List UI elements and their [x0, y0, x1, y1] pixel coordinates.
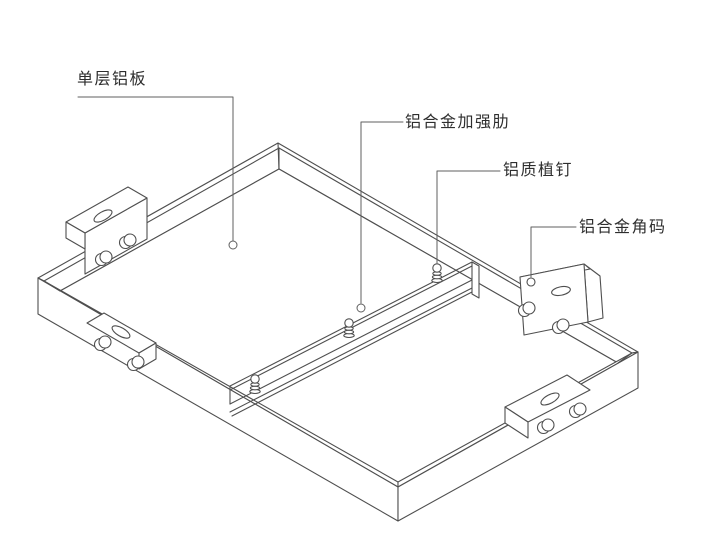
- leader-endpoint: [357, 304, 365, 312]
- stud-3: [432, 264, 442, 283]
- technical-diagram: 单层铝板 铝合金加强肋 铝质植钉 铝合金角码: [0, 0, 721, 549]
- label-aluminum-alloy-corner-bracket: 铝合金角码: [579, 217, 667, 236]
- rib-end-cap: [472, 262, 479, 298]
- leader-endpoint: [229, 241, 237, 249]
- label-single-layer-aluminum-panel: 单层铝板: [77, 69, 147, 88]
- bracket-hole: [527, 278, 535, 286]
- label-aluminum-alloy-reinforcing-rib: 铝合金加强肋: [405, 112, 510, 131]
- label-aluminum-stud: 铝质植钉: [503, 160, 573, 179]
- stud-2: [344, 319, 354, 338]
- stud-1: [250, 375, 260, 394]
